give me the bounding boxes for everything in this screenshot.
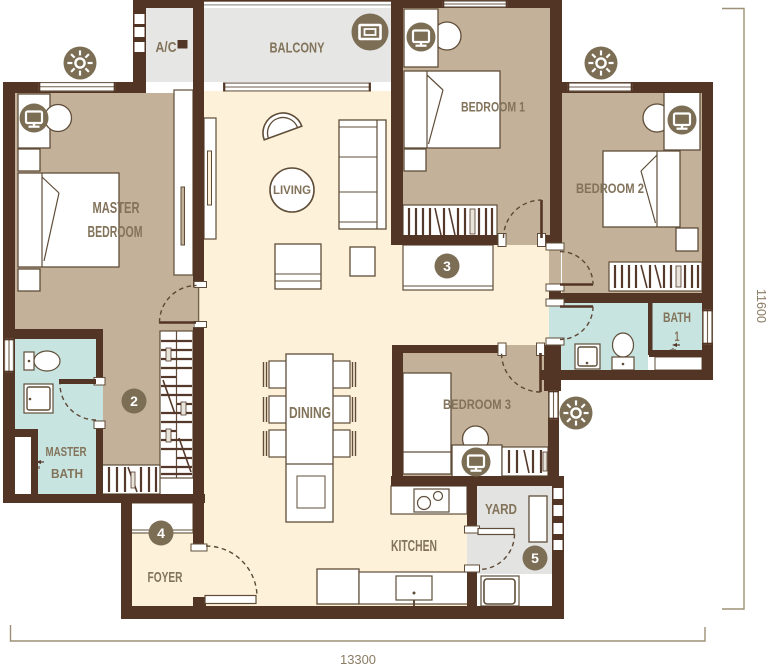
svg-text:DINING: DINING	[289, 405, 331, 422]
svg-text:BEDROOM 3: BEDROOM 3	[443, 397, 511, 412]
svg-text:FOYER: FOYER	[148, 569, 183, 586]
svg-text:13300: 13300	[340, 653, 376, 667]
svg-text:BEDROOM: BEDROOM	[88, 224, 143, 241]
svg-text:BATH: BATH	[51, 466, 83, 481]
svg-text:MASTER: MASTER	[46, 444, 87, 459]
svg-text:BEDROOM 2: BEDROOM 2	[576, 181, 644, 196]
svg-text:BEDROOM 1: BEDROOM 1	[461, 100, 525, 115]
svg-text:BALCONY: BALCONY	[270, 40, 325, 57]
svg-text:KITCHEN: KITCHEN	[391, 538, 437, 555]
svg-text:BATH: BATH	[663, 309, 691, 325]
svg-text:LIVING: LIVING	[273, 185, 311, 197]
svg-text:YARD: YARD	[485, 501, 517, 518]
svg-text:11600: 11600	[754, 289, 768, 323]
svg-text:1: 1	[675, 328, 680, 344]
svg-text:2: 2	[130, 393, 138, 409]
svg-text:4: 4	[157, 525, 165, 541]
svg-text:5: 5	[531, 550, 539, 566]
svg-text:A/C: A/C	[156, 39, 177, 56]
svg-text:3: 3	[443, 258, 451, 274]
svg-text:MASTER: MASTER	[93, 200, 140, 217]
